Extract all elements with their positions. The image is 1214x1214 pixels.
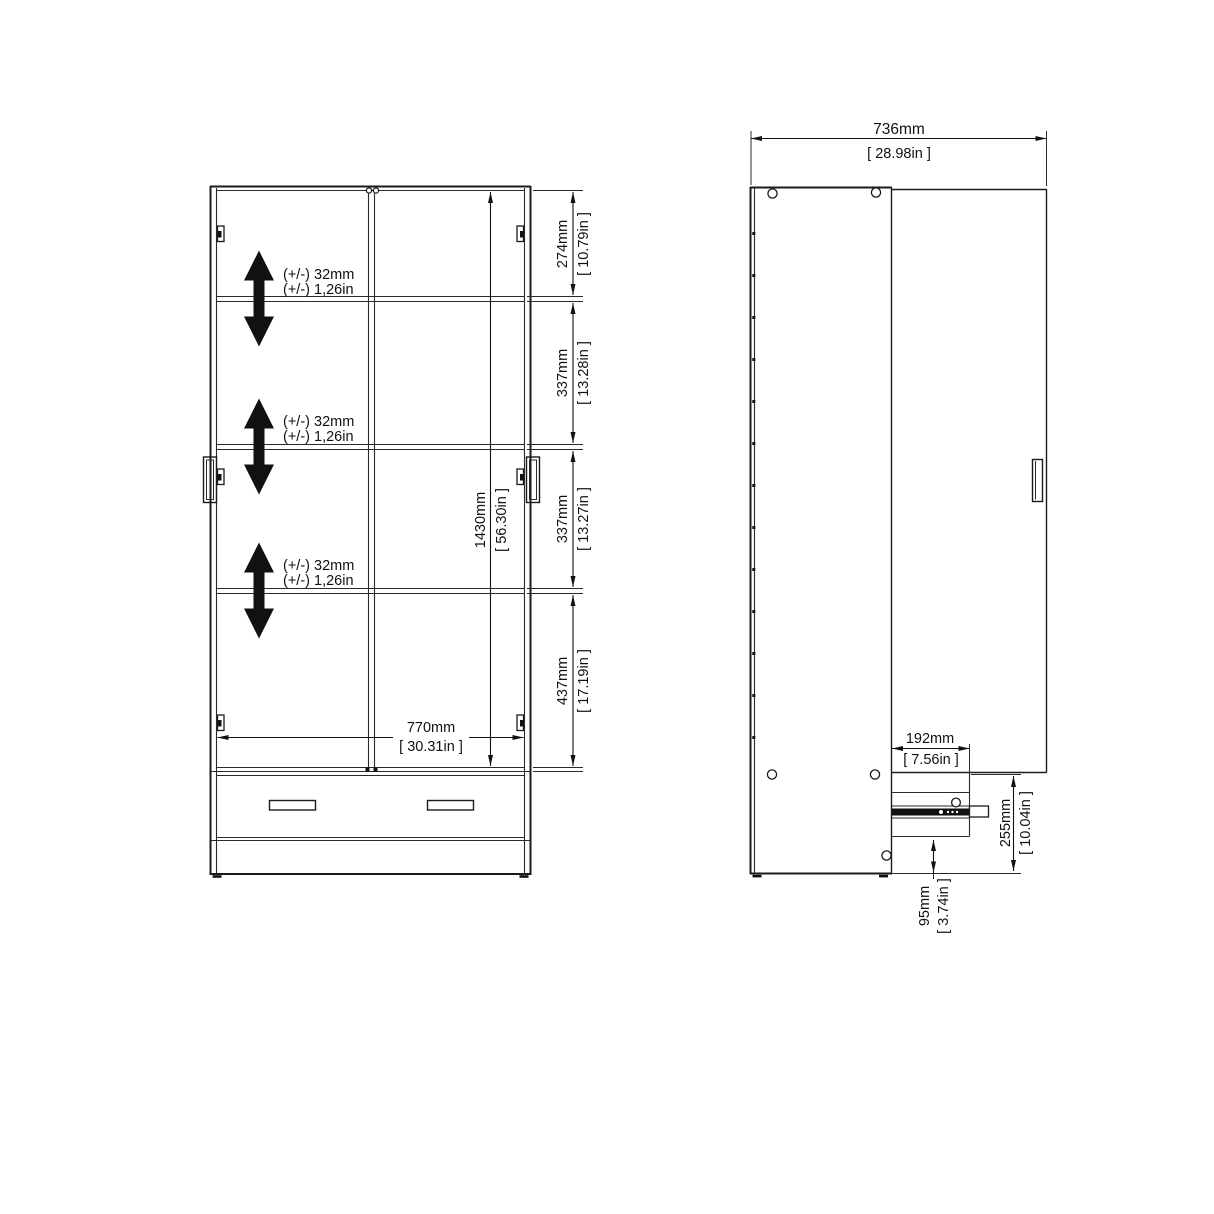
cam-lock-icon	[767, 770, 776, 779]
shelf-adjust-label-inch: (+/-) 1,26in	[283, 282, 354, 298]
dim-clearance-inch: [ 3.74in ]	[936, 878, 952, 934]
shelf-adjust-label-mm: (+/-) 32mm	[283, 558, 354, 574]
side-front-foot	[879, 875, 888, 878]
wardrobe-dimension-drawing: (+/-) 32mm (+/-) 1,26in (+/-) 32mm (+/-)…	[0, 0, 1214, 1214]
dim-drawer-height-mm: 255mm	[998, 799, 1014, 847]
cam-lock-icon	[768, 189, 777, 198]
dim-section4-mm: 437mm	[555, 657, 571, 705]
front-drawer	[211, 776, 530, 841]
front-center-divider	[366, 188, 379, 772]
divider-top-fitting-left	[366, 188, 371, 193]
side-view: 736mm [ 28.98in ] 192mm [ 7.56in ] 255mm…	[750, 121, 1047, 934]
cam-lock-icon	[882, 851, 891, 860]
dim-clearance-mm: 95mm	[917, 886, 933, 926]
side-back-foot	[753, 875, 762, 878]
dim-drawer-depth-mm: 192mm	[906, 731, 954, 747]
up-down-arrow-icon	[244, 399, 274, 495]
dim-section2-inch: [ 13.28in ]	[576, 341, 592, 405]
divider-top-fitting-right	[373, 188, 378, 193]
front-view: (+/-) 32mm (+/-) 1,26in (+/-) 32mm (+/-)…	[204, 186, 593, 878]
dim-depth-mm: 736mm	[873, 121, 925, 138]
dim-drawer-depth-inch: [ 7.56in ]	[903, 752, 959, 768]
dim-section1-mm: 274mm	[555, 220, 571, 268]
drawer-handle-icon	[270, 801, 316, 811]
shelf-adjust-label-mm: (+/-) 32mm	[283, 267, 354, 283]
technical-drawing-canvas: (+/-) 32mm (+/-) 1,26in (+/-) 32mm (+/-)…	[0, 0, 1214, 1214]
dim-interior-height-inch: [ 56.30in ]	[494, 488, 510, 552]
dim-interior-width-mm: 770mm	[407, 720, 455, 736]
up-down-arrow-icon	[244, 543, 274, 639]
front-left-foot	[213, 875, 222, 878]
shelf-adjust-label-inch: (+/-) 1,26in	[283, 429, 354, 445]
up-down-arrow-icon	[244, 251, 274, 347]
front-door-handle-right	[527, 457, 540, 503]
rail-roller-icon	[952, 798, 961, 807]
dim-section2-mm: 337mm	[555, 349, 571, 397]
shelf-adjust-label-inch: (+/-) 1,26in	[283, 573, 354, 589]
drawer-rail-tab	[970, 806, 989, 817]
shelf-adjust-label-mm: (+/-) 32mm	[283, 414, 354, 430]
dim-section4-inch: [ 17.19in ]	[576, 649, 592, 713]
dim-interior-height-mm: 1430mm	[473, 492, 489, 548]
front-dimensions: 274mm [ 10.79in ] 337mm [ 13.28in ] 337m…	[218, 191, 593, 772]
cam-lock-icon	[871, 188, 880, 197]
dim-interior-width-inch: [ 30.31in ]	[399, 739, 463, 755]
dim-section1-inch: [ 10.79in ]	[576, 212, 592, 276]
drawer-handle-icon	[428, 801, 474, 811]
dim-section3-inch: [ 13.27in ]	[576, 487, 592, 551]
dim-drawer-height-inch: [ 10.04in ]	[1018, 791, 1034, 855]
side-drawer-slide	[892, 773, 989, 837]
side-door-handle	[1033, 460, 1043, 502]
dim-section3-mm: 337mm	[555, 495, 571, 543]
side-cam-fittings	[767, 188, 891, 860]
cam-lock-icon	[870, 770, 879, 779]
dim-depth-inch: [ 28.98in ]	[867, 146, 931, 162]
side-cabinet-outline	[750, 187, 1047, 877]
front-right-foot	[520, 875, 529, 878]
shelf-adjust-arrows: (+/-) 32mm (+/-) 1,26in (+/-) 32mm (+/-)…	[244, 251, 354, 639]
